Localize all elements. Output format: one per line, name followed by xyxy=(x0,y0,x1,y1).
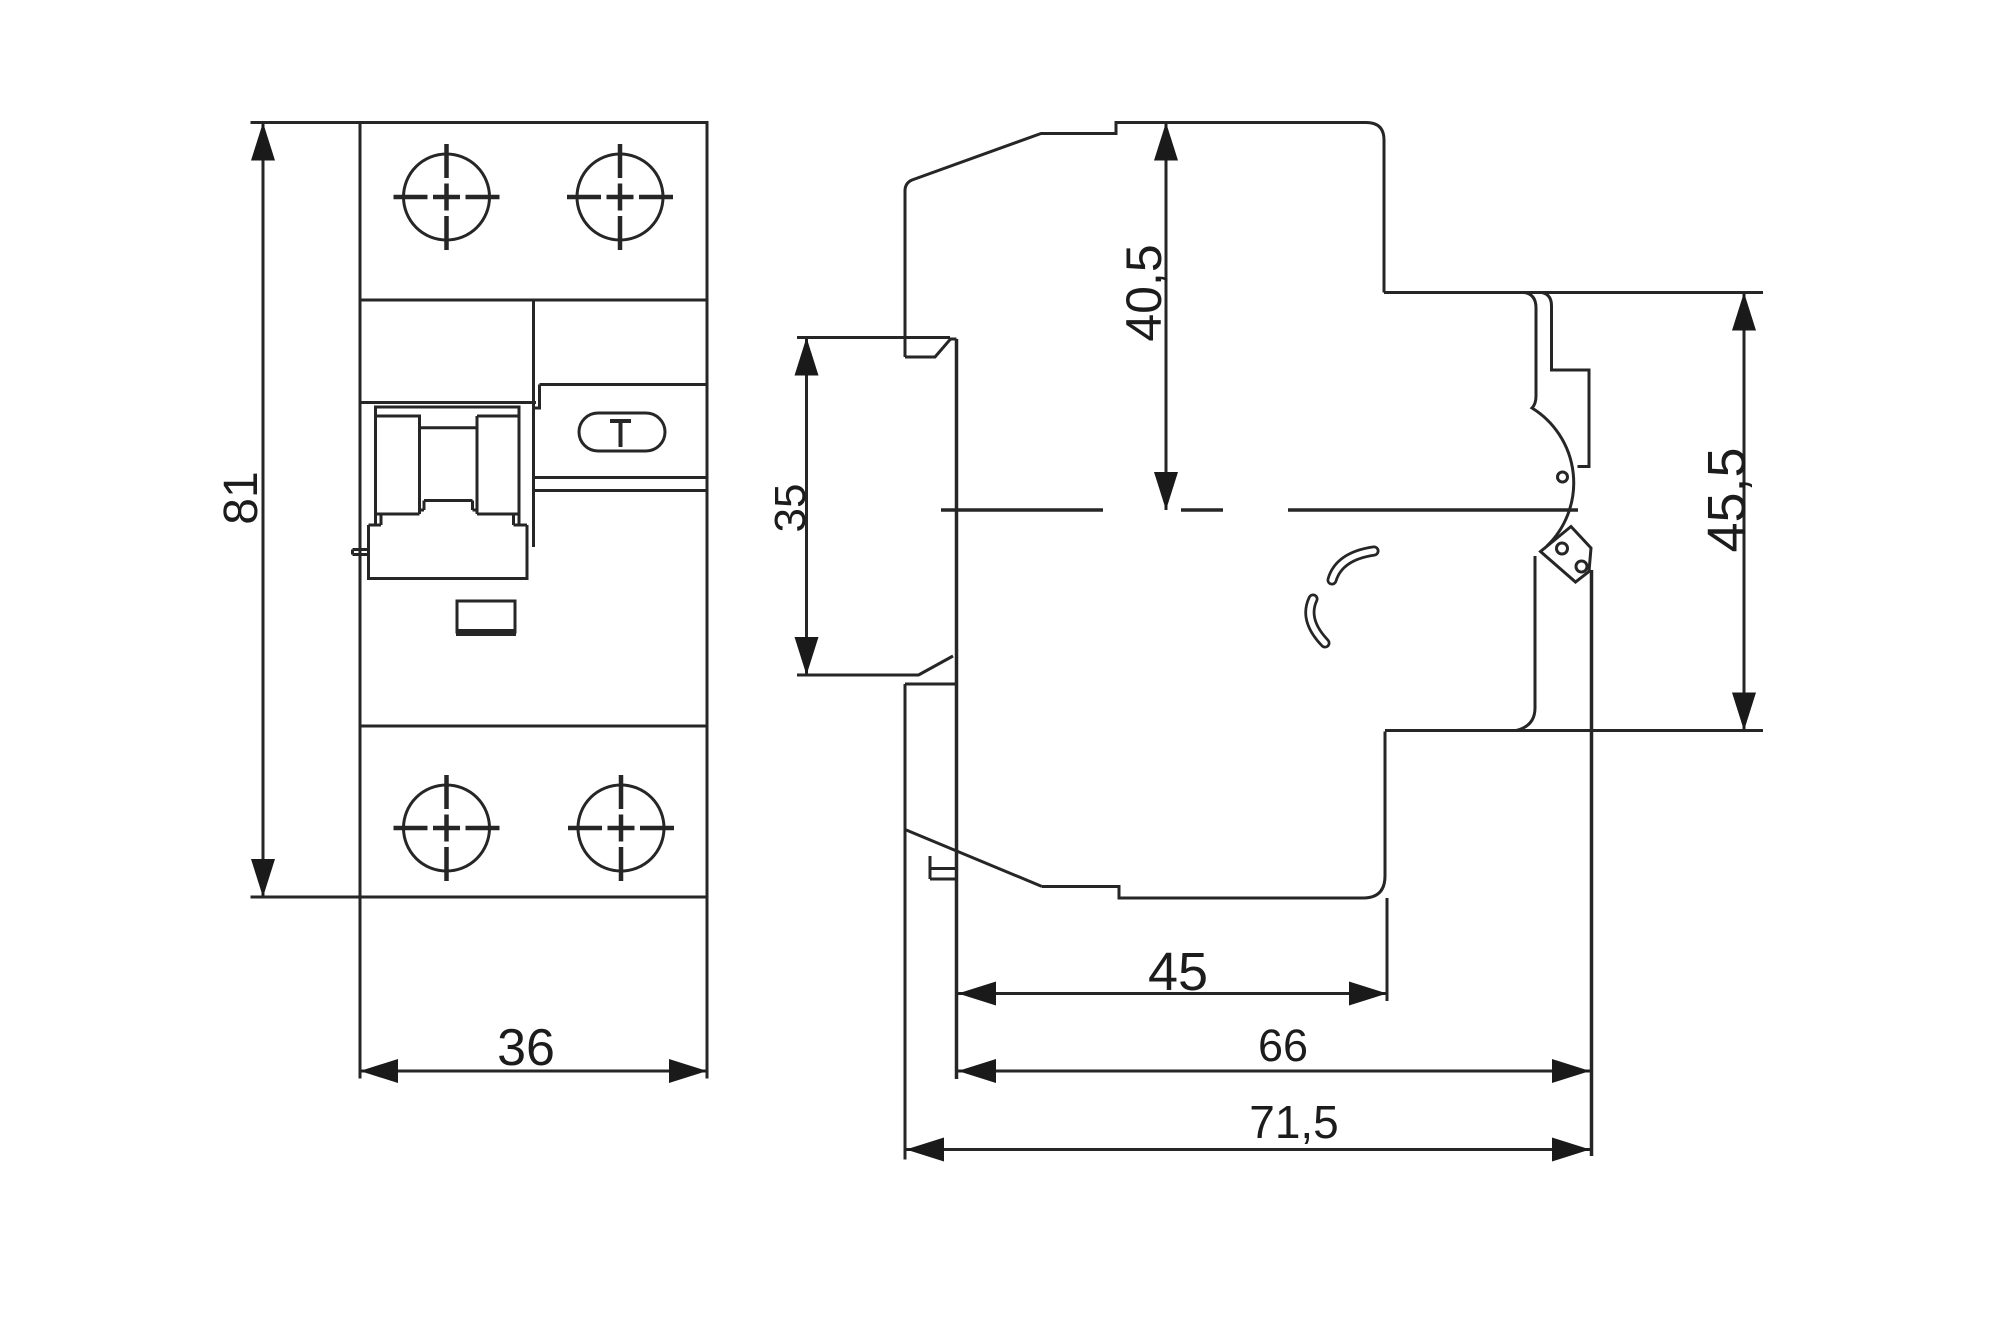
svg-text:36: 36 xyxy=(497,1019,555,1077)
svg-text:45: 45 xyxy=(1148,942,1208,1002)
svg-text:66: 66 xyxy=(1258,1020,1308,1071)
svg-text:35: 35 xyxy=(766,484,815,533)
svg-text:40,5: 40,5 xyxy=(1116,244,1172,341)
svg-text:81: 81 xyxy=(215,471,268,524)
svg-text:45,5: 45,5 xyxy=(1697,447,1757,552)
svg-text:71,5: 71,5 xyxy=(1249,1096,1339,1148)
